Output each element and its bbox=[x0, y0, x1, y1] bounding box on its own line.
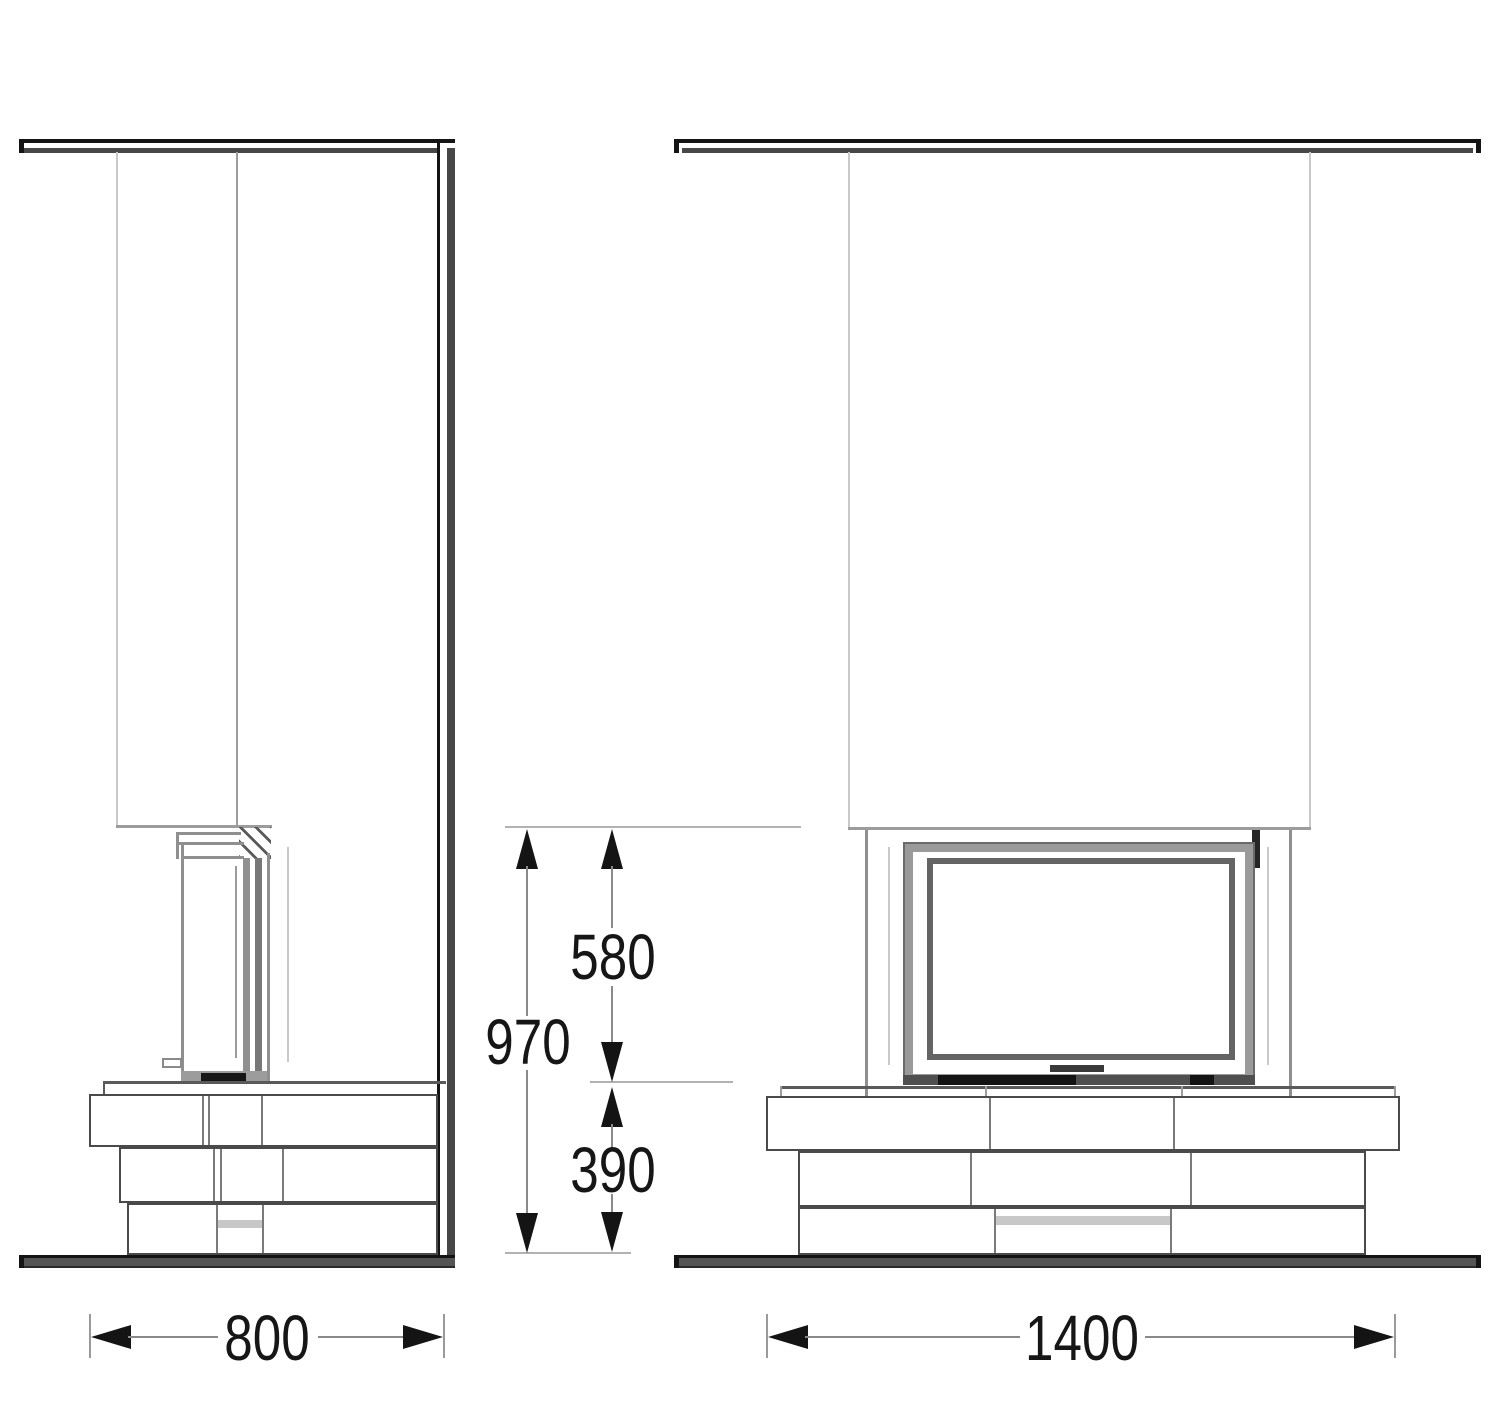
dimension-tick bbox=[443, 1314, 445, 1358]
stove-glass-inner-edge bbox=[235, 866, 237, 1058]
floor-end-cap bbox=[1476, 1255, 1481, 1268]
arrow-right-icon bbox=[403, 1325, 443, 1349]
stove-body-band-front bbox=[243, 858, 250, 1077]
tier1-joint bbox=[208, 1096, 210, 1145]
tier1-joint bbox=[1173, 1098, 1175, 1149]
tier2-joint bbox=[213, 1149, 215, 1201]
dim-800-line bbox=[318, 1336, 404, 1338]
breast-right-edge bbox=[1309, 152, 1311, 828]
opening-height-label: 580 bbox=[570, 925, 655, 989]
dimension-tick bbox=[1394, 1314, 1396, 1358]
door-handle bbox=[1050, 1065, 1104, 1072]
stove-body-band-rear bbox=[255, 858, 262, 1077]
right-column-outer-edge bbox=[1289, 830, 1292, 1096]
arrow-down-icon bbox=[601, 1212, 623, 1252]
total-height-label: 970 bbox=[485, 1010, 570, 1074]
rear-wall-line-outer bbox=[447, 148, 455, 1267]
ceiling-line bbox=[22, 139, 455, 143]
floor-end-cap bbox=[674, 1255, 679, 1268]
hearth-tier-3 bbox=[127, 1203, 438, 1255]
tier2-joint bbox=[970, 1153, 972, 1205]
arrow-up-icon bbox=[601, 829, 623, 869]
hearth-tier-2 bbox=[798, 1151, 1366, 1207]
ceiling-line-inner bbox=[22, 148, 437, 153]
tier3-joint bbox=[216, 1205, 218, 1253]
ceiling-end-cap bbox=[1476, 139, 1481, 153]
door-bottom-black-bar bbox=[1190, 1075, 1214, 1085]
hearth-lip-line bbox=[103, 1081, 446, 1084]
arrow-up-icon bbox=[601, 1087, 623, 1127]
ceiling-end-cap bbox=[674, 139, 679, 153]
hearth-tier-1 bbox=[89, 1094, 438, 1147]
ceiling-line bbox=[677, 139, 1478, 143]
rear-wall-line bbox=[437, 143, 440, 1259]
dim-580-line bbox=[611, 986, 613, 1044]
tier1-joint bbox=[989, 1098, 991, 1149]
dim-390-line bbox=[611, 1194, 613, 1214]
wall-reveal-line bbox=[287, 847, 289, 1062]
dim-580-line bbox=[611, 866, 613, 928]
arrow-left-icon bbox=[768, 1325, 808, 1349]
door-glass bbox=[927, 858, 1235, 1060]
floor-line bbox=[22, 1255, 455, 1268]
tier1-joint bbox=[261, 1096, 263, 1145]
arrow-left-icon bbox=[91, 1325, 131, 1349]
breast-bottom-edge bbox=[848, 827, 1311, 830]
hearth-lip-line bbox=[780, 1086, 1396, 1089]
hearth-tier-1 bbox=[766, 1096, 1400, 1151]
left-column-outer-edge bbox=[865, 830, 868, 1096]
left-column-reveal bbox=[888, 847, 890, 1065]
tier3-joint bbox=[262, 1205, 264, 1253]
tier3-shadow-band bbox=[218, 1220, 262, 1228]
stove-cap-mid bbox=[176, 842, 244, 845]
tier2-joint bbox=[282, 1149, 284, 1201]
floor-end-cap bbox=[19, 1255, 24, 1268]
arrow-down-icon bbox=[516, 1213, 538, 1253]
tier3-joint bbox=[1170, 1209, 1172, 1253]
stove-cap-bottom bbox=[181, 856, 244, 859]
tier2-joint bbox=[220, 1149, 222, 1201]
width-label: 1400 bbox=[1025, 1306, 1139, 1370]
arrow-right-icon bbox=[1354, 1325, 1394, 1349]
dim-970-line bbox=[526, 1070, 528, 1215]
door-bottom-black-bar bbox=[938, 1075, 1076, 1085]
tier2-joint bbox=[1190, 1153, 1192, 1205]
depth-label: 800 bbox=[224, 1306, 309, 1370]
fireplace-dimension-diagram: 970 580 390 800 1400 bbox=[0, 0, 1500, 1427]
stove-cap-left bbox=[176, 832, 179, 859]
stove-back-edge bbox=[267, 853, 270, 1083]
stove-cap-top bbox=[176, 832, 241, 835]
arrow-down-icon bbox=[601, 1042, 623, 1082]
reference-line-top bbox=[505, 826, 801, 828]
right-column-reveal bbox=[1267, 847, 1269, 1065]
tier3-shadow-band bbox=[996, 1216, 1170, 1225]
hearth-lip-corner bbox=[103, 1081, 105, 1095]
door-handle-side bbox=[162, 1058, 182, 1068]
base-height-label: 390 bbox=[570, 1138, 655, 1202]
dim-970-line bbox=[526, 866, 528, 1016]
tier1-joint bbox=[202, 1096, 204, 1145]
dim-1400-line bbox=[805, 1336, 1020, 1338]
floor-line bbox=[677, 1255, 1478, 1268]
stove-front-edge bbox=[181, 843, 184, 1078]
breast-front-edge bbox=[116, 152, 118, 827]
breast-left-edge bbox=[848, 152, 850, 828]
dim-800-line bbox=[128, 1336, 218, 1338]
breast-inner-edge bbox=[236, 152, 238, 827]
hearth-tier-3 bbox=[798, 1207, 1366, 1255]
arrow-up-icon bbox=[516, 829, 538, 869]
ceiling-end-cap bbox=[19, 139, 24, 153]
hearth-tier-2 bbox=[119, 1147, 438, 1203]
ceiling-line-inner bbox=[682, 148, 1473, 153]
dim-1400-line bbox=[1145, 1336, 1355, 1338]
